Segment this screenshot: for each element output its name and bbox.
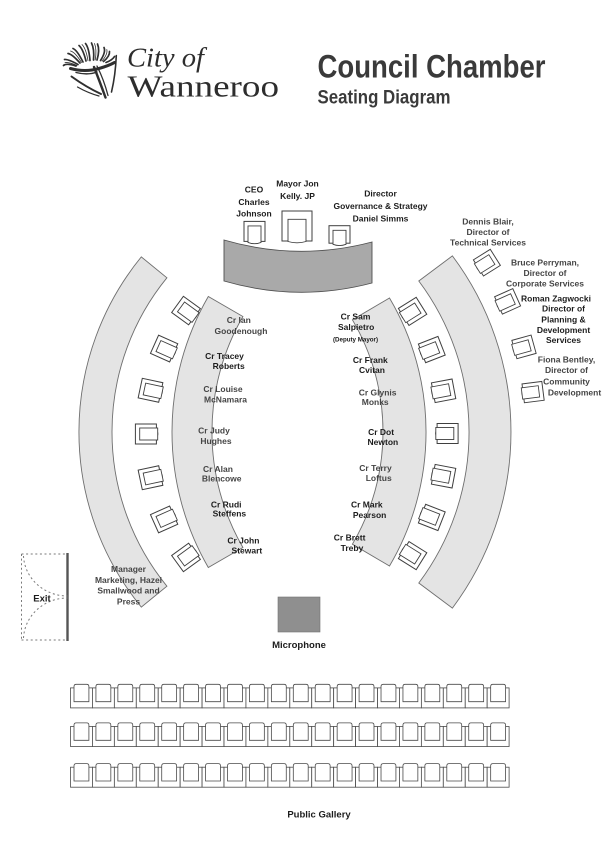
svg-text:Smallwood and: Smallwood and [97, 586, 159, 596]
svg-text:Cr Alan: Cr Alan [203, 464, 233, 474]
svg-text:Blencowe: Blencowe [202, 474, 242, 484]
svg-text:Treby: Treby [341, 543, 364, 553]
svg-text:Director of: Director of [524, 268, 567, 278]
svg-text:Steffens: Steffens [213, 509, 247, 519]
svg-text:Seating Diagram: Seating Diagram [318, 87, 451, 109]
svg-text:Newton: Newton [368, 437, 399, 447]
svg-text:Charles: Charles [238, 197, 269, 207]
svg-text:Roberts: Roberts [213, 361, 245, 371]
svg-text:Pearson: Pearson [353, 510, 387, 520]
svg-text:Cr John: Cr John [227, 536, 259, 546]
svg-text:Monks: Monks [362, 397, 389, 407]
svg-text:Services: Services [546, 335, 581, 345]
svg-text:Hughes: Hughes [200, 436, 231, 446]
svg-text:Director: Director [364, 189, 397, 199]
svg-text:Technical Services: Technical Services [450, 238, 526, 248]
svg-text:Marketing, Hazel: Marketing, Hazel [95, 575, 162, 585]
svg-text:Cr Terry: Cr Terry [359, 463, 392, 473]
svg-text:Fiona Bentley,: Fiona Bentley, [538, 355, 595, 365]
svg-text:Cr Sam: Cr Sam [341, 312, 371, 322]
svg-text:Kelly. JP: Kelly. JP [280, 191, 315, 201]
svg-text:Public Gallery: Public Gallery [287, 809, 351, 820]
svg-text:Cr Frank: Cr Frank [353, 355, 388, 365]
svg-text:Cr Ian: Cr Ian [227, 315, 251, 325]
svg-text:Development: Development [548, 387, 602, 397]
svg-text:Community: Community [543, 377, 590, 387]
svg-text:Cr Brett: Cr Brett [334, 533, 366, 543]
svg-text:Cr Tracey: Cr Tracey [205, 351, 244, 361]
svg-text:Press: Press [117, 596, 140, 606]
svg-text:Cr Judy: Cr Judy [198, 425, 230, 435]
svg-text:McNamara: McNamara [204, 394, 247, 404]
svg-text:Goodenough: Goodenough [215, 326, 268, 336]
svg-text:Governance & Strategy: Governance & Strategy [333, 201, 427, 211]
svg-text:Cr Mark: Cr Mark [351, 499, 383, 509]
svg-text:Microphone: Microphone [272, 640, 326, 651]
svg-text:(Deputy Mayor): (Deputy Mayor) [333, 337, 378, 344]
svg-text:Mayor Jon: Mayor Jon [276, 179, 319, 189]
svg-text:Director of: Director of [467, 227, 510, 237]
svg-text:Daniel Simms: Daniel Simms [353, 213, 409, 223]
svg-text:Stewart: Stewart [232, 545, 263, 555]
svg-text:Exit: Exit [33, 594, 51, 605]
svg-text:Development: Development [537, 325, 591, 335]
svg-text:Director of: Director of [545, 365, 588, 375]
svg-text:Cr Louise: Cr Louise [203, 384, 242, 394]
svg-text:Cr Glynis: Cr Glynis [359, 388, 397, 398]
svg-text:Bruce Perryman,: Bruce Perryman, [511, 258, 579, 268]
svg-text:Corporate Services: Corporate Services [506, 279, 584, 289]
svg-text:Cr Dot: Cr Dot [368, 427, 394, 437]
svg-text:Council Chamber: Council Chamber [318, 49, 546, 85]
svg-text:Salpietro: Salpietro [338, 322, 374, 332]
svg-text:Roman Zagwocki: Roman Zagwocki [521, 293, 591, 303]
svg-text:Loftus: Loftus [366, 473, 392, 483]
svg-text:Johnson: Johnson [236, 209, 271, 219]
svg-text:Cvitan: Cvitan [359, 365, 385, 375]
svg-text:Dennis Blair,: Dennis Blair, [462, 217, 514, 227]
svg-text:Planning &: Planning & [541, 315, 585, 325]
svg-text:Director of: Director of [542, 303, 585, 313]
svg-text:Manager: Manager [111, 564, 147, 574]
svg-text:Wanneroo: Wanneroo [128, 69, 280, 104]
svg-text:CEO: CEO [245, 185, 264, 195]
